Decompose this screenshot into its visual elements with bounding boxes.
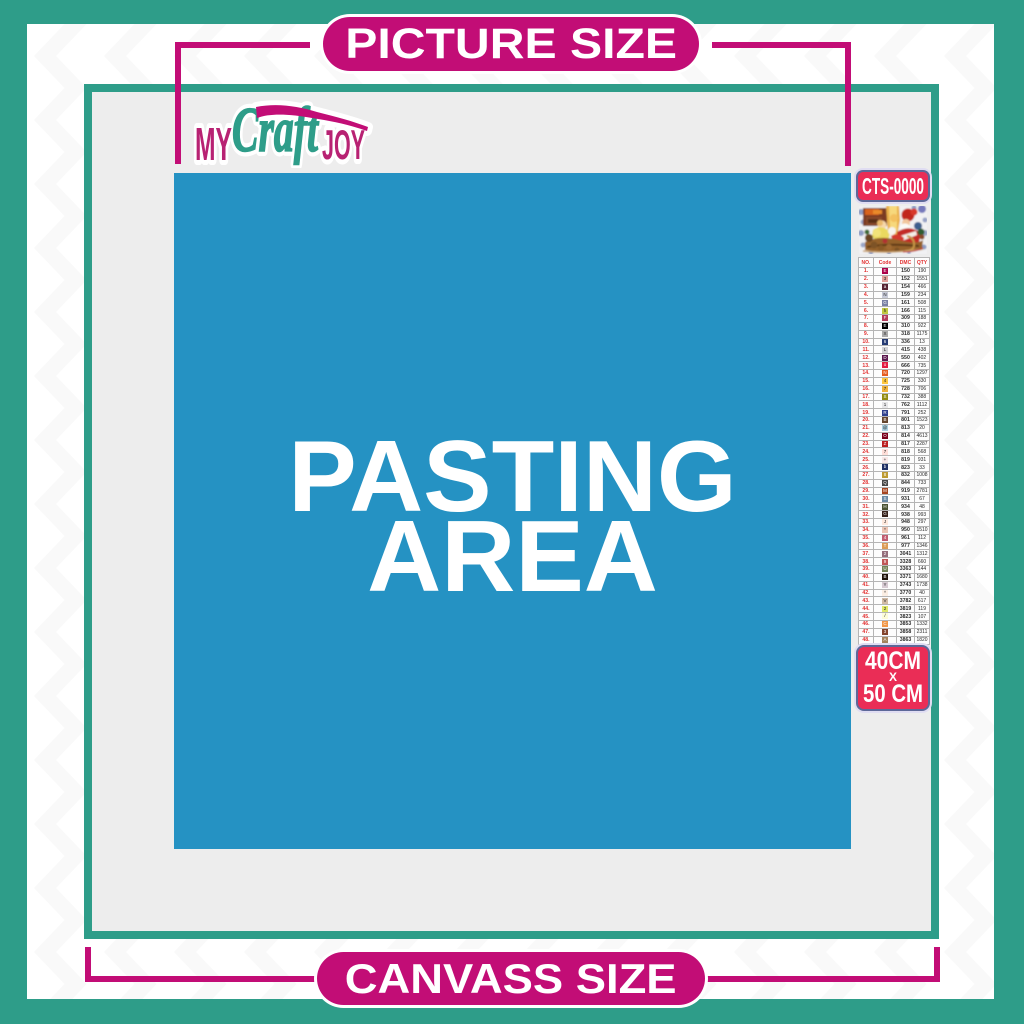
svg-text:CTS-0000: CTS-0000	[862, 173, 924, 199]
svg-text:MY: MY	[195, 118, 232, 168]
svg-text:50 CM: 50 CM	[863, 680, 923, 708]
svg-text:Craft: Craft	[232, 94, 319, 165]
